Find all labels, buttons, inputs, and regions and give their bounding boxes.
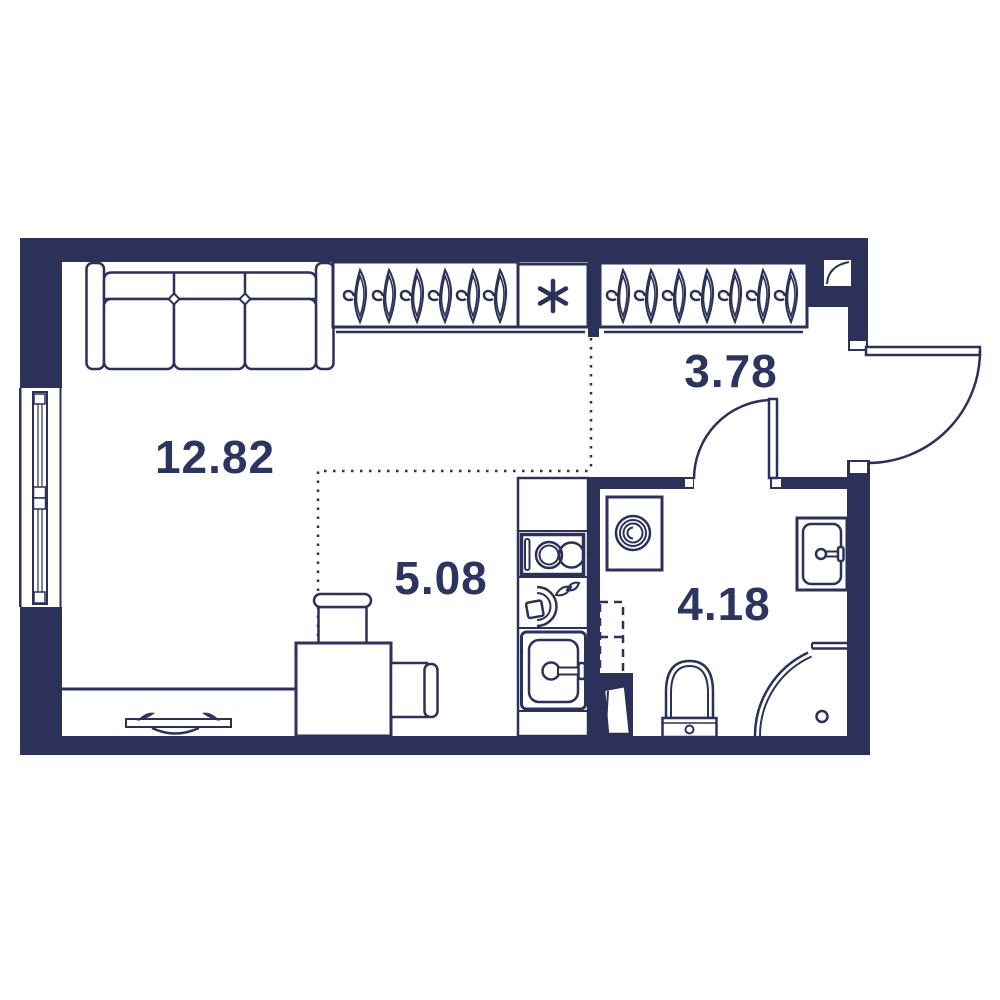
window-hinge-top (34, 394, 45, 404)
wardrobe-right (600, 263, 807, 332)
entry-door-leaf (866, 347, 980, 355)
left-wall-upper (20, 238, 62, 388)
washing-machine (607, 497, 662, 570)
chair-top (314, 594, 371, 643)
kitchen-counter (518, 478, 588, 736)
dining-table (296, 643, 391, 736)
room-label-kitchen: 5.08 (394, 552, 488, 604)
sofa-armrest-right (316, 263, 334, 369)
refrigerator (518, 264, 588, 327)
toilet (663, 661, 717, 737)
sofa-seat-3 (245, 299, 316, 369)
sink-drain (543, 663, 560, 680)
right-wall (847, 460, 870, 755)
floor-plan: 12.82 5.08 3.78 4.18 (0, 0, 1000, 1000)
bath-door-frame-right (772, 479, 781, 487)
stove (522, 535, 585, 575)
sofa-seat-1 (104, 299, 174, 369)
wash-basin (797, 518, 847, 590)
top-wall (20, 238, 868, 262)
kitchen-partition-upper (588, 262, 599, 337)
shower-door-arc (755, 653, 808, 736)
shower (755, 643, 847, 736)
floor-plan-page: 12.82 5.08 3.78 4.18 (0, 0, 1000, 1000)
entry-door (866, 347, 980, 463)
window (19, 388, 62, 607)
radiator (126, 713, 231, 734)
faucet-icon (558, 668, 580, 675)
bottom-wall (20, 736, 870, 755)
window-hinge-bottom (34, 592, 45, 603)
flush-button (686, 726, 694, 734)
bathroom-door-swing-arc (694, 400, 770, 479)
room-label-bathroom: 4.18 (677, 578, 771, 630)
room-label-hallway: 3.78 (684, 345, 778, 397)
vent-duct-icon (824, 260, 851, 286)
window-handle (34, 487, 46, 498)
entry-door-swing-arc (868, 351, 980, 463)
bathroom-door-leaf (769, 399, 777, 478)
bathroom-top-wall-left (600, 477, 694, 489)
sofa-backrest (104, 273, 316, 300)
bathroom-door (694, 399, 777, 479)
bath-door-frame-left (685, 479, 693, 487)
entry-frame-bottom (850, 462, 867, 473)
plumbing-shaft (600, 602, 623, 675)
chair-right (391, 663, 438, 717)
room-label-living: 12.82 (155, 431, 275, 483)
radiator-zone (62, 689, 296, 734)
shaft-access-door (604, 686, 630, 734)
shower-drain (817, 711, 828, 722)
bathroom-top-wall-right (770, 477, 847, 489)
sofa-armrest-left (87, 263, 105, 369)
sofa-seat-2 (174, 299, 245, 369)
dining-set (296, 594, 438, 736)
sofa (87, 263, 334, 369)
kitchen-sink (522, 632, 586, 709)
entry-frame-top (850, 341, 866, 349)
left-wall-lower (20, 607, 62, 755)
basin-faucet-icon (816, 549, 826, 559)
